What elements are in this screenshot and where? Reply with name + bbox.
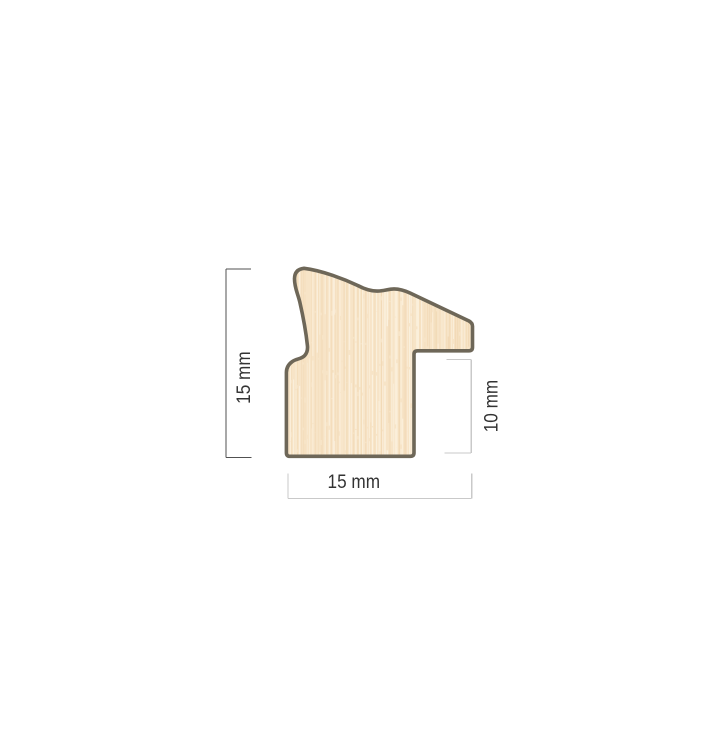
svg-text:10 mm: 10 mm xyxy=(481,380,502,433)
svg-text:15 mm: 15 mm xyxy=(328,472,381,493)
svg-text:15 mm: 15 mm xyxy=(234,351,255,404)
